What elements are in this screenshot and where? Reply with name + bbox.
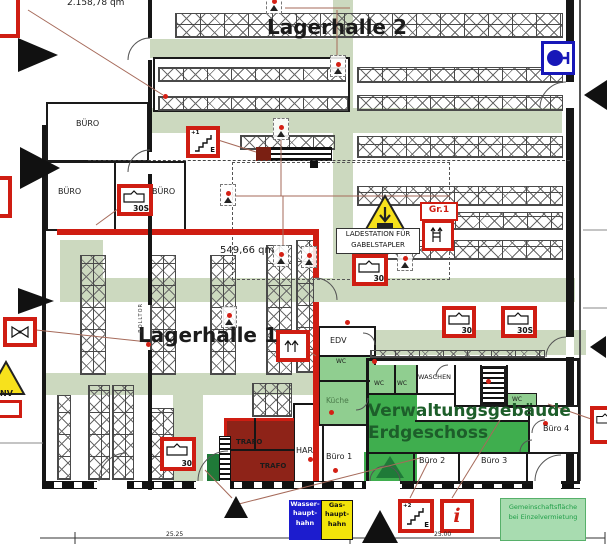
area-label-lagerhalle2: 2.158,78 qm: [67, 0, 124, 9]
room-label-wc: WC: [374, 381, 384, 388]
hydrant-icon: [541, 41, 575, 75]
smoke-detector-icon: [273, 118, 289, 140]
dimension-lines: [0, 230, 607, 544]
shutoff-valve-icon: [3, 317, 37, 347]
fire-door-30s-icon: 30S: [117, 184, 153, 216]
partial-sign-icon: [0, 176, 12, 218]
gas-sign-line1: Gas-: [322, 501, 352, 510]
detector-dot: [163, 94, 168, 99]
detector-dot: [345, 320, 350, 325]
entrance-arrow-icon: [590, 336, 606, 358]
room-label-buero4: Büro 4: [543, 425, 569, 434]
title-lagerhalle2: Lagerhalle 2: [267, 16, 407, 38]
gas-sign-line3: hahn: [322, 520, 352, 529]
smoke-detector-icon: [330, 55, 346, 77]
stair-exit-label: E: [210, 146, 215, 154]
shared-area-line2: bei Einzelvermietung: [503, 513, 583, 523]
water-sign-line1: Wasser-: [289, 500, 321, 509]
entrance-arrow-icon: [224, 496, 248, 518]
area-label-lagerhalle1: 549,66 qm: [220, 245, 274, 256]
room-label-buero3: Büro 3: [481, 457, 507, 466]
smoke-detector-icon: [301, 246, 317, 268]
info-letter: i: [453, 507, 460, 526]
dimension-label: 25.25: [166, 531, 183, 538]
entrance-arrow-icon: [18, 288, 54, 314]
fire-door-label: 30S: [133, 204, 149, 213]
stairway-sign-icon: +1 E: [186, 126, 220, 158]
entrance-arrow-icon: [362, 510, 398, 543]
gas-main-sign: Gas- haupt- hahn: [321, 500, 353, 540]
detector-dot: [486, 379, 491, 384]
nv-label: NV: [0, 390, 13, 399]
fire-door-label: 30: [182, 459, 192, 468]
stairway-sign-icon: +2 E: [398, 499, 434, 533]
room-label-wc: WC: [397, 381, 407, 388]
smoke-detector-icon: [273, 245, 289, 267]
detector-dot: [308, 457, 313, 462]
shared-area-line1: Gemeinschaftsfläche: [503, 503, 583, 513]
room-label-buero: BÜRO: [76, 120, 99, 129]
title-verwaltung-line2: Erdgeschoss: [368, 424, 488, 443]
room-label-buero1: Büro 1: [326, 453, 352, 462]
smoke-vent-icon: [276, 330, 310, 362]
title-lagerhalle1: Lagerhalle 1: [138, 324, 278, 346]
group1-label: Gr.1: [429, 205, 449, 215]
room-label-buero: BÜRO: [152, 188, 175, 197]
fire-door-30-icon: 30: [442, 306, 476, 338]
partial-sign-icon: [0, 400, 22, 418]
room-label-wc: WC: [512, 397, 522, 404]
info-icon: i: [440, 499, 474, 533]
plan-annotations: [0, 0, 607, 554]
floor-plan-canvas: +1 E 30S Gr.1 30 30 30S 30 +2 E i: [0, 0, 607, 554]
entrance-arrow-icon: [18, 38, 58, 72]
room-label-kueche: Küche: [326, 397, 349, 405]
shared-area-note: Gemeinschaftsfläche bei Einzelvermietung: [500, 498, 586, 541]
room-label-trafo: TRAFO: [260, 463, 286, 471]
room-label-buero: BÜRO: [58, 188, 81, 197]
room-label-rolltor: ROLLTOR: [139, 303, 145, 333]
smoke-detector-icon: [266, 0, 282, 14]
fire-door-30-icon: 30: [352, 254, 388, 286]
detector-dot: [372, 359, 377, 364]
ladder-sign-icon: [422, 220, 454, 251]
ladestation-label: LADESTATION FÜR GABELSTAPLER: [336, 228, 420, 254]
fire-door-label: 30: [374, 274, 384, 283]
gas-sign-line2: haupt-: [322, 510, 352, 519]
partial-sign-icon: [590, 406, 607, 444]
water-main-sign: Wasser- haupt- hahn: [289, 500, 321, 540]
fire-door-label: 30: [462, 326, 472, 335]
room-label-wc: WC: [336, 359, 346, 366]
smoke-detector-icon: [220, 184, 236, 206]
water-sign-line3: hahn: [289, 519, 321, 528]
stair-level-label: +1: [191, 130, 199, 136]
stair-level-label: +2: [403, 503, 411, 509]
ladestation-line1: LADESTATION FÜR: [337, 229, 419, 240]
room-label-buero2: Büro 2: [419, 457, 445, 466]
ladestation-line2: GABELSTAPLER: [337, 240, 419, 251]
title-verwaltung-line1: Verwaltungsgebäude: [368, 402, 571, 421]
room-label-waschen: WASCHEN: [418, 374, 451, 381]
detector-dot: [329, 410, 334, 415]
fire-door-30s-icon: 30S: [501, 306, 537, 338]
dimension-label: 25.00: [434, 531, 451, 538]
room-label-har: HAR: [296, 447, 313, 456]
partial-sign-icon: [0, 0, 20, 38]
stair-exit-label: E: [424, 521, 429, 529]
group1-label-box: Gr.1: [420, 202, 458, 221]
water-sign-line2: haupt-: [289, 509, 321, 518]
fire-door-30-icon: 30: [160, 437, 196, 471]
entrance-arrow-icon: [584, 80, 607, 110]
detector-dot: [333, 468, 338, 473]
room-label-edv: EDV: [330, 337, 347, 346]
room-label-trafo: TRAFO: [236, 439, 262, 447]
fire-door-label: 30S: [517, 326, 533, 335]
entrance-arrow-icon: [20, 147, 60, 189]
